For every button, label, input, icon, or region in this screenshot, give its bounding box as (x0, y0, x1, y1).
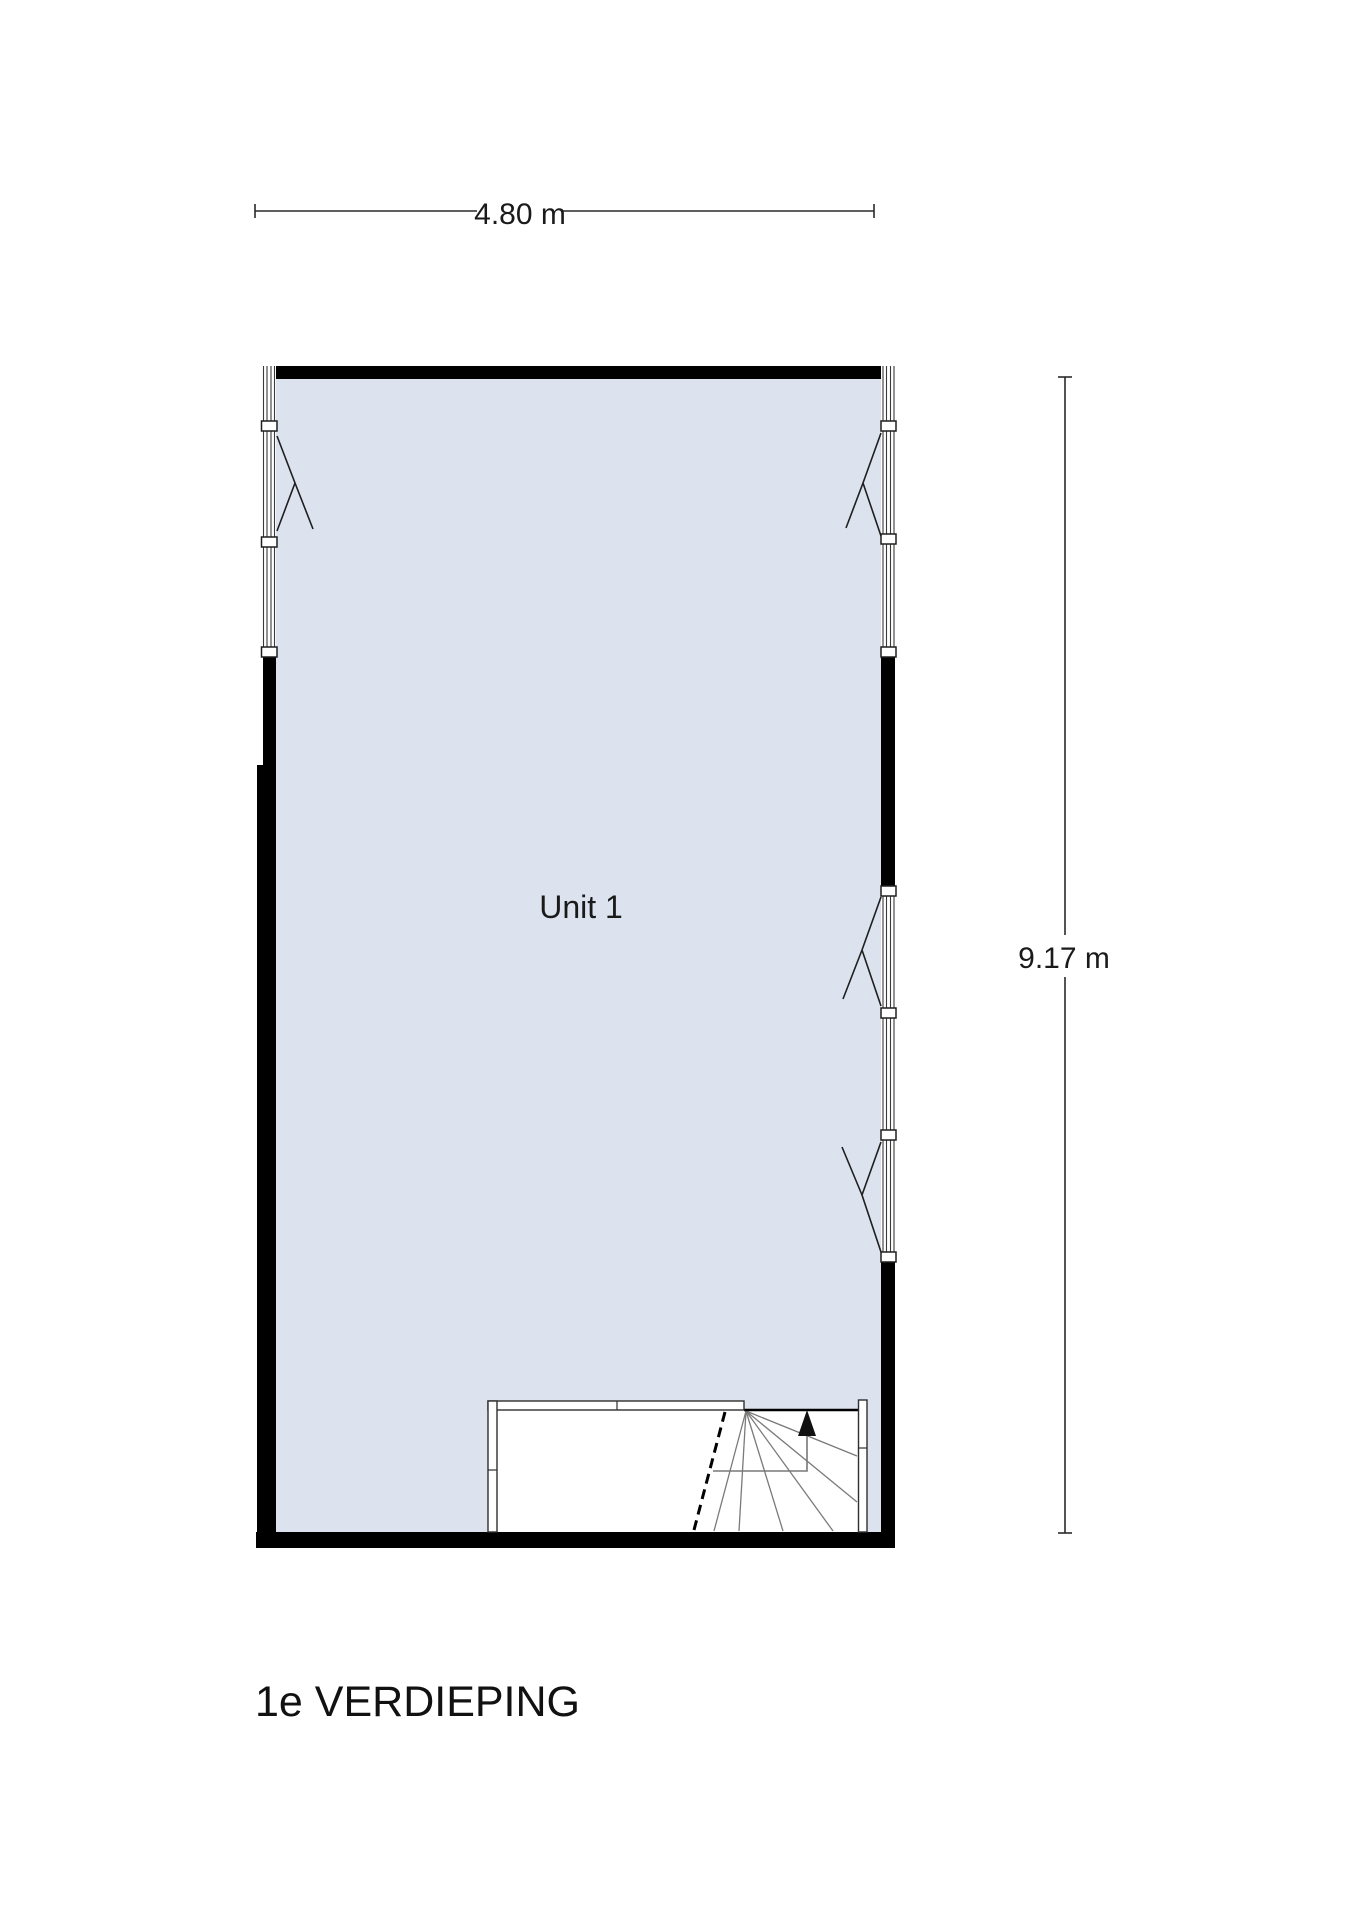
dimension-height: 9.17 m (1017, 377, 1113, 1533)
stair-rail-right (859, 1400, 868, 1532)
dimension-width: 4.80 m (255, 193, 874, 231)
window-right-upper-mullion-2 (881, 534, 896, 544)
window-right-lower-mullion-2 (881, 1008, 896, 1018)
room-area (276, 377, 881, 1532)
window-left-mullion-2 (262, 537, 278, 547)
window-left-mullion-1 (262, 421, 278, 431)
window-right-lower-mullion-4 (881, 1252, 896, 1262)
staircase (488, 1400, 867, 1532)
dimension-height-label: 9.17 m (1018, 942, 1110, 975)
stair-rail-top (488, 1401, 744, 1410)
floor-plan: Unit 1 (256, 366, 896, 1548)
window-right-upper-mullion-1 (881, 421, 896, 431)
window-right-lower-mullion-3 (881, 1130, 896, 1140)
stair-rail-left (488, 1401, 497, 1532)
floor-title: 1e VERDIEPING (255, 1678, 580, 1726)
wall-right-middle (881, 657, 895, 886)
wall-top (276, 366, 881, 379)
window-left-mullion-3 (262, 647, 278, 657)
window-right-lower-mullion-1 (881, 886, 896, 896)
room-label: Unit 1 (539, 889, 623, 925)
wall-bottom (256, 1532, 895, 1548)
window-right-upper-mullion-3 (881, 647, 896, 657)
wall-left-lower (257, 765, 276, 1532)
wall-right-lower (881, 1262, 895, 1532)
wall-left-upper (263, 657, 276, 765)
dimension-width-label: 4.80 m (474, 198, 566, 231)
floorplan-page: 4.80 m 9.17 m (0, 0, 1358, 1920)
